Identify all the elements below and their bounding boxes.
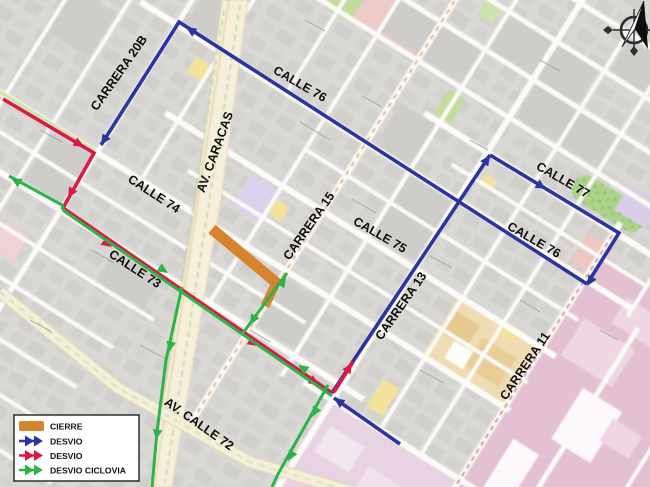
svg-text:CIERRE: CIERRE (50, 422, 83, 432)
svg-text:DESVIO: DESVIO (50, 451, 83, 461)
svg-text:DESVIO: DESVIO (50, 437, 83, 447)
svg-text:DESVIO CICLOVIA: DESVIO CICLOVIA (50, 466, 126, 476)
